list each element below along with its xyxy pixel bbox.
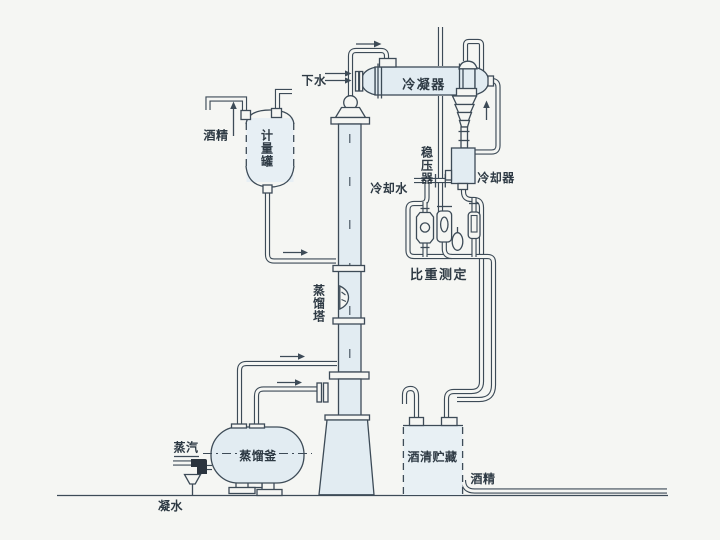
arrow-up-icon (230, 102, 237, 110)
label-column: 蒸馏塔 (312, 283, 326, 323)
column-base-flange (330, 372, 370, 379)
label-kettle: 蒸馏釜 (239, 448, 277, 463)
label-cooler: 冷却器 (477, 170, 515, 185)
condensate-funnel (185, 475, 201, 485)
label-alcohol-feed: 酒精 (203, 128, 228, 143)
cooler-body (452, 148, 476, 184)
condenser-inlet-flange (356, 72, 359, 92)
diagram-canvas: 下水 冷凝器 酒精 计量罐 稳压器 冷却水 冷却器 比重测定 蒸馏塔 蒸馏釜 蒸… (0, 0, 720, 540)
column-flange-lower (333, 318, 365, 324)
label-gravity-measure: 比重测定 (410, 267, 468, 282)
metering-tank-bottom-nozzle (263, 185, 272, 193)
arrow-right-icon (295, 379, 302, 386)
label-metering-tank: 计量罐 (260, 128, 274, 168)
process-flow-diagram: 下水 冷凝器 酒精 计量罐 稳压器 冷却水 冷却器 比重测定 蒸馏塔 蒸馏釜 蒸… (0, 0, 720, 540)
cooler-bottom-nozzle (458, 184, 468, 190)
arrow-right-icon (301, 249, 308, 256)
condenser-outlet-nozzle (488, 76, 494, 86)
arrow-up-icon (483, 101, 490, 109)
label-drain-water: 下水 (301, 73, 327, 88)
arrow-right-icon (374, 41, 382, 48)
column-top-flange (331, 118, 370, 125)
label-alcohol-out: 酒精 (470, 471, 495, 486)
hydrometer-float (452, 233, 463, 251)
label-condenser: 冷凝器 (402, 77, 446, 92)
label-cooling-water: 冷却水 (370, 181, 408, 196)
column-side-nozzle-flange (317, 383, 322, 402)
distillation-column (317, 96, 374, 495)
column-skirt (319, 420, 374, 495)
label-stabilizer: 稳压器 (420, 145, 434, 185)
column-skirt-lip (325, 415, 370, 420)
storage-tank-nozzle-right (442, 418, 458, 426)
label-steam: 蒸汽 (173, 440, 198, 455)
steam-valve (192, 460, 207, 474)
condenser-top-nozzle (380, 59, 397, 68)
cooler-vessel (446, 148, 476, 190)
storage-tank-nozzle-left (410, 418, 424, 426)
condenser-vent-dome (459, 61, 477, 69)
metering-tank-nozzle-left (241, 111, 251, 120)
cooler-side-tab (446, 171, 452, 181)
reducer-stack (453, 89, 477, 149)
arrow-right-icon (298, 353, 305, 360)
column-body (339, 124, 362, 372)
column-dome (336, 108, 366, 118)
column-lower-section (339, 379, 362, 417)
condenser-left-cap (362, 67, 376, 95)
metering-tank-nozzle-right (272, 109, 282, 118)
label-storage-tank: 酒清贮藏 (407, 449, 457, 464)
column-flange-upper (333, 266, 365, 272)
label-condensate: 凝水 (158, 498, 184, 513)
